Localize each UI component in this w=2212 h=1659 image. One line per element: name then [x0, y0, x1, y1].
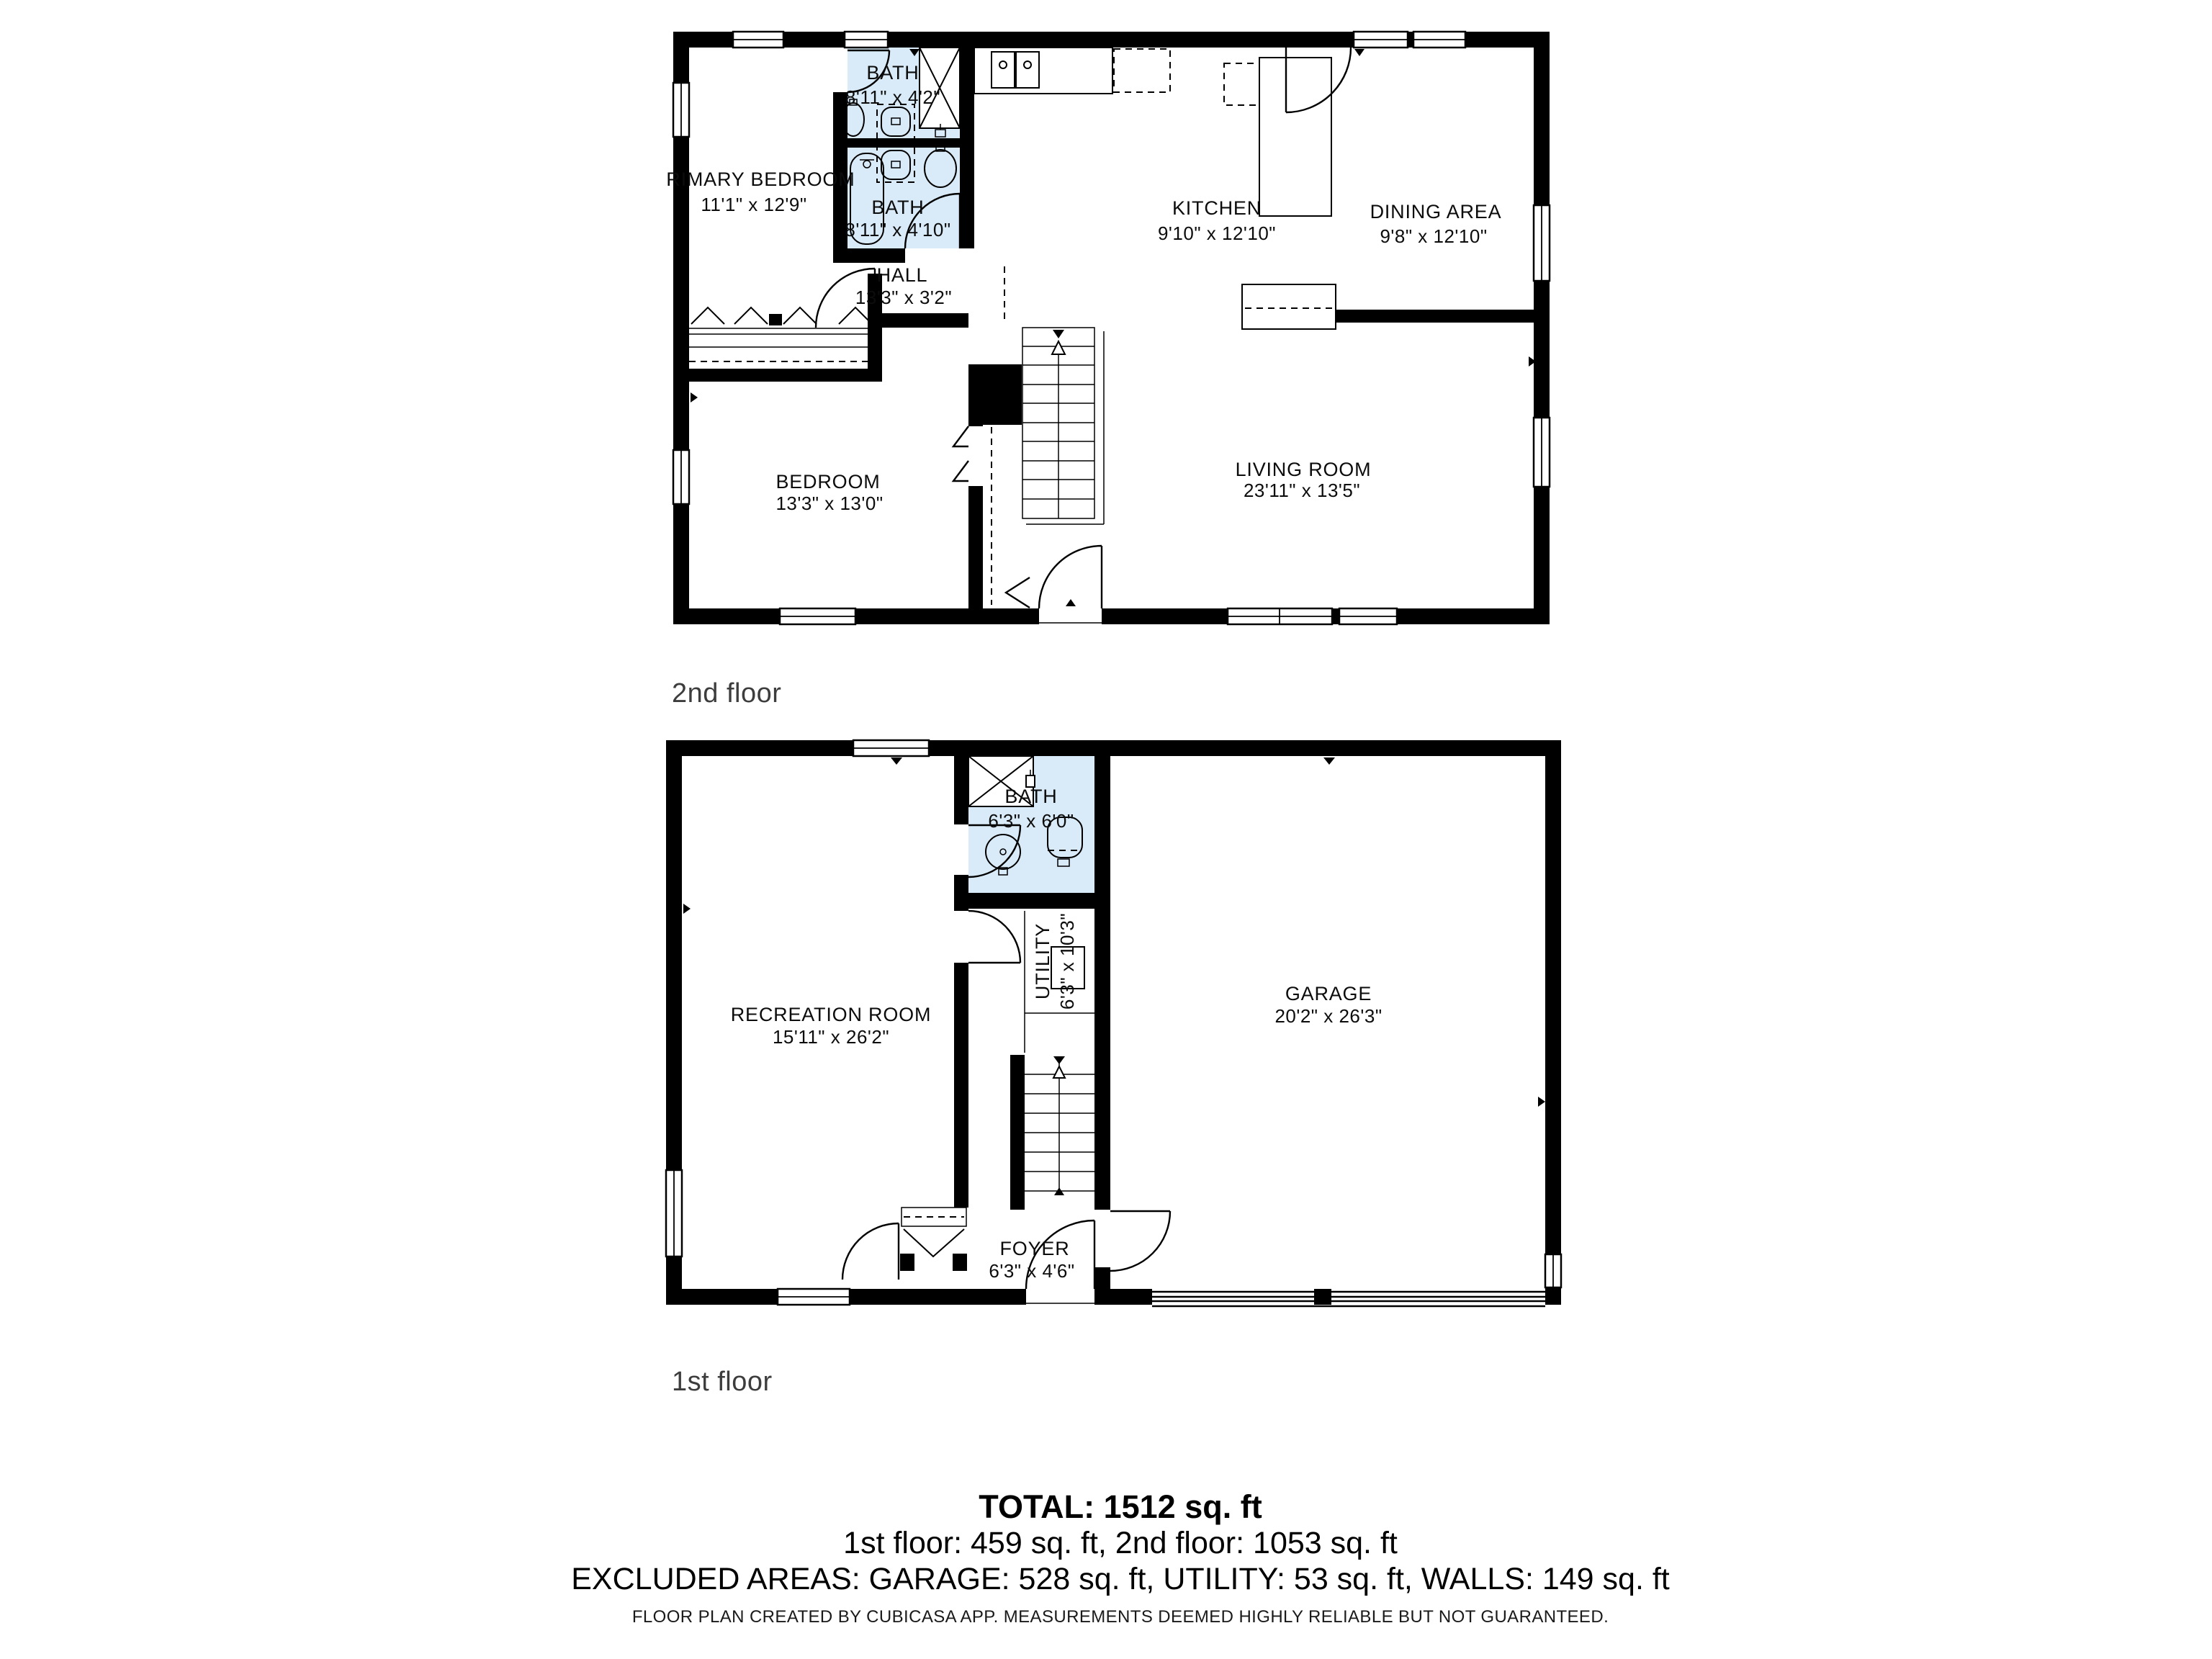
room-dims-utility: 6'3" x 10'3" — [1056, 913, 1078, 1010]
room-label-bath-main: BATH — [871, 197, 924, 218]
first-floor-caption: 1st floor — [672, 1367, 773, 1398]
room-label-primary-bedroom: PRIMARY BEDROOM — [666, 168, 855, 190]
kitchen-counter-icon — [974, 48, 1331, 216]
disclaimer-text: FLOOR PLAN CREATED BY CUBICASA APP. MEAS… — [14, 1607, 2212, 1627]
room-dims-bath-main: 8'11" x 4'10" — [845, 219, 950, 240]
floorplan-page: { "floor2": { "label": "2nd floor", "roo… — [0, 0, 2212, 1659]
second-floor-plan: PRIMARY BEDROOM 11'1" x 12'9" BATH 8'11"… — [666, 22, 1559, 634]
room-dims-kitchen: 9'10" x 12'10" — [1158, 222, 1276, 244]
room-dims-garage: 20'2" x 26'3" — [1274, 1005, 1382, 1027]
room-dims-bedroom: 13'3" x 13'0" — [775, 493, 883, 514]
room-dims-hall: 13'3" x 3'2" — [855, 287, 952, 308]
closet-rail-icon — [689, 307, 875, 361]
room-dims-bath: 6'3" x 6'0" — [988, 810, 1074, 832]
room-label-recreation: RECREATION ROOM — [731, 1004, 932, 1025]
room-label-utility: UTILITY — [1032, 923, 1053, 999]
room-labels: PRIMARY BEDROOM 11'1" x 12'9" BATH 8'11"… — [666, 62, 1501, 514]
room-label-bedroom: BEDROOM — [775, 471, 880, 493]
excluded-areas-text: EXCLUDED AREAS: GARAGE: 528 sq. ft, UTIL… — [14, 1561, 2212, 1597]
room-label-hall: HALL — [877, 264, 928, 286]
foyer-closet-icon — [900, 1208, 967, 1271]
room-label-living: LIVING ROOM — [1236, 459, 1372, 480]
area-summary: TOTAL: 1512 sq. ft 1st floor: 459 sq. ft… — [14, 1489, 2212, 1597]
wall-ticks — [691, 49, 1536, 606]
room-dims-primary-bedroom: 11'1" x 12'9" — [701, 194, 806, 215]
room-dims-bath-top: 8'11" x 4'2" — [845, 86, 940, 108]
room-label-bath-top: BATH — [866, 62, 919, 84]
stairs-up — [1022, 328, 1104, 524]
dining-table-icon — [1242, 284, 1336, 329]
room-dims-foyer: 6'3" x 4'6" — [989, 1260, 1074, 1282]
second-floor-caption: 2nd floor — [672, 678, 781, 709]
first-floor-plan: BATH 6'3" x 6'0" UTILITY 6'3" x 10'3" RE… — [659, 731, 1573, 1314]
floor-areas-text: 1st floor: 459 sq. ft, 2nd floor: 1053 s… — [14, 1525, 2212, 1561]
room-label-foyer: FOYER — [999, 1238, 1069, 1259]
room-dims-dining: 9'8" x 12'10" — [1380, 225, 1487, 247]
stairs-up — [1025, 1056, 1094, 1195]
total-area-text: TOTAL: 1512 sq. ft — [14, 1489, 2212, 1525]
room-dims-recreation: 15'11" x 26'2" — [773, 1026, 889, 1048]
room-label-dining: DINING AREA — [1370, 201, 1502, 222]
wall-ticks — [683, 757, 1545, 1107]
room-dims-living: 23'11" x 13'5" — [1244, 480, 1360, 501]
room-label-kitchen: KITCHEN — [1172, 197, 1262, 219]
room-label-bath: BATH — [1004, 786, 1057, 807]
garage-door — [1152, 1292, 1545, 1306]
room-label-garage: GARAGE — [1285, 983, 1372, 1004]
